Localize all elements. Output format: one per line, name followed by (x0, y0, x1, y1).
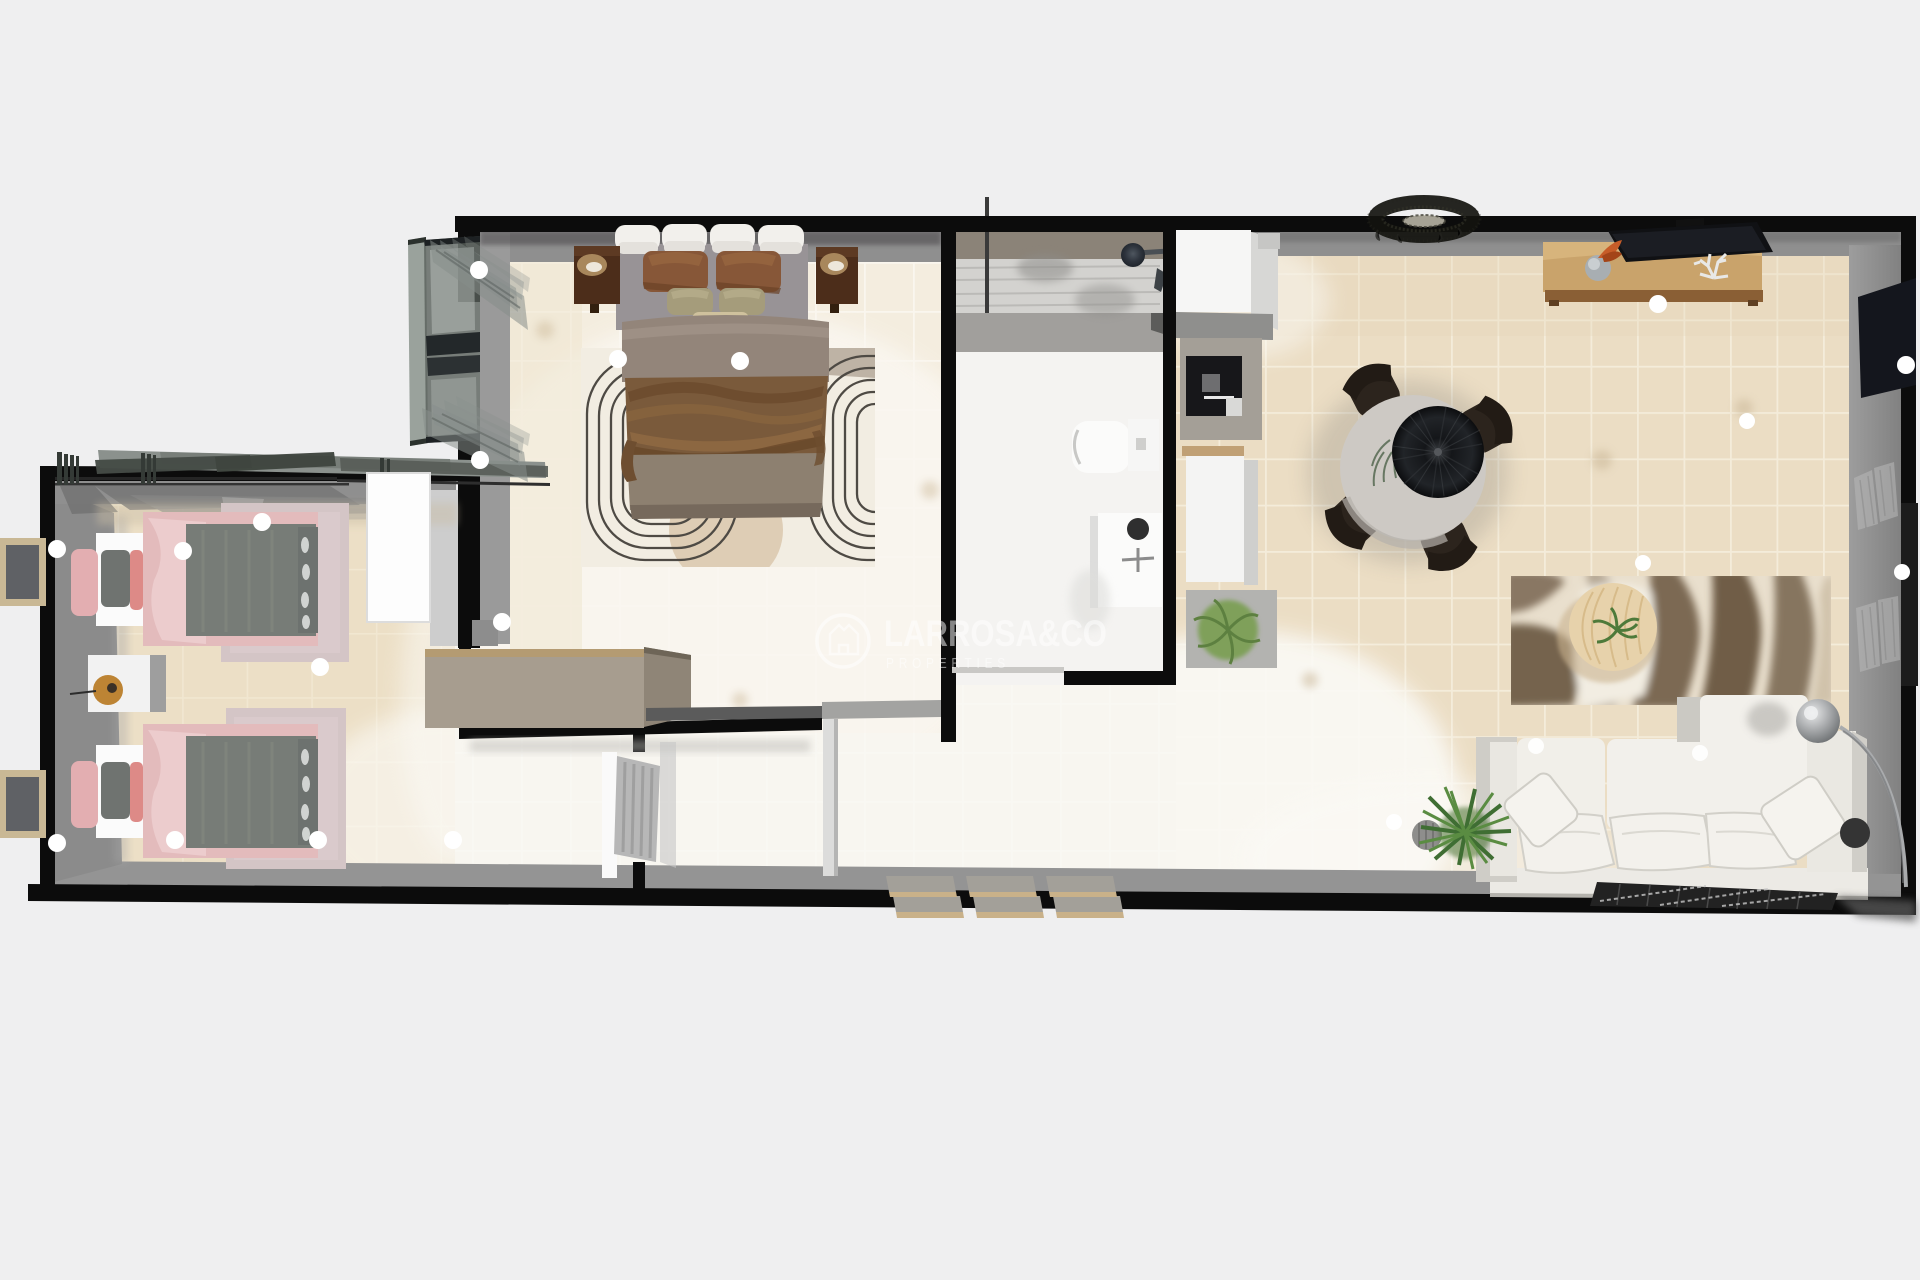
svg-text:LARROSA&CO: LARROSA&CO (884, 613, 1107, 654)
svg-text:PROPERTIES: PROPERTIES (886, 655, 1010, 672)
